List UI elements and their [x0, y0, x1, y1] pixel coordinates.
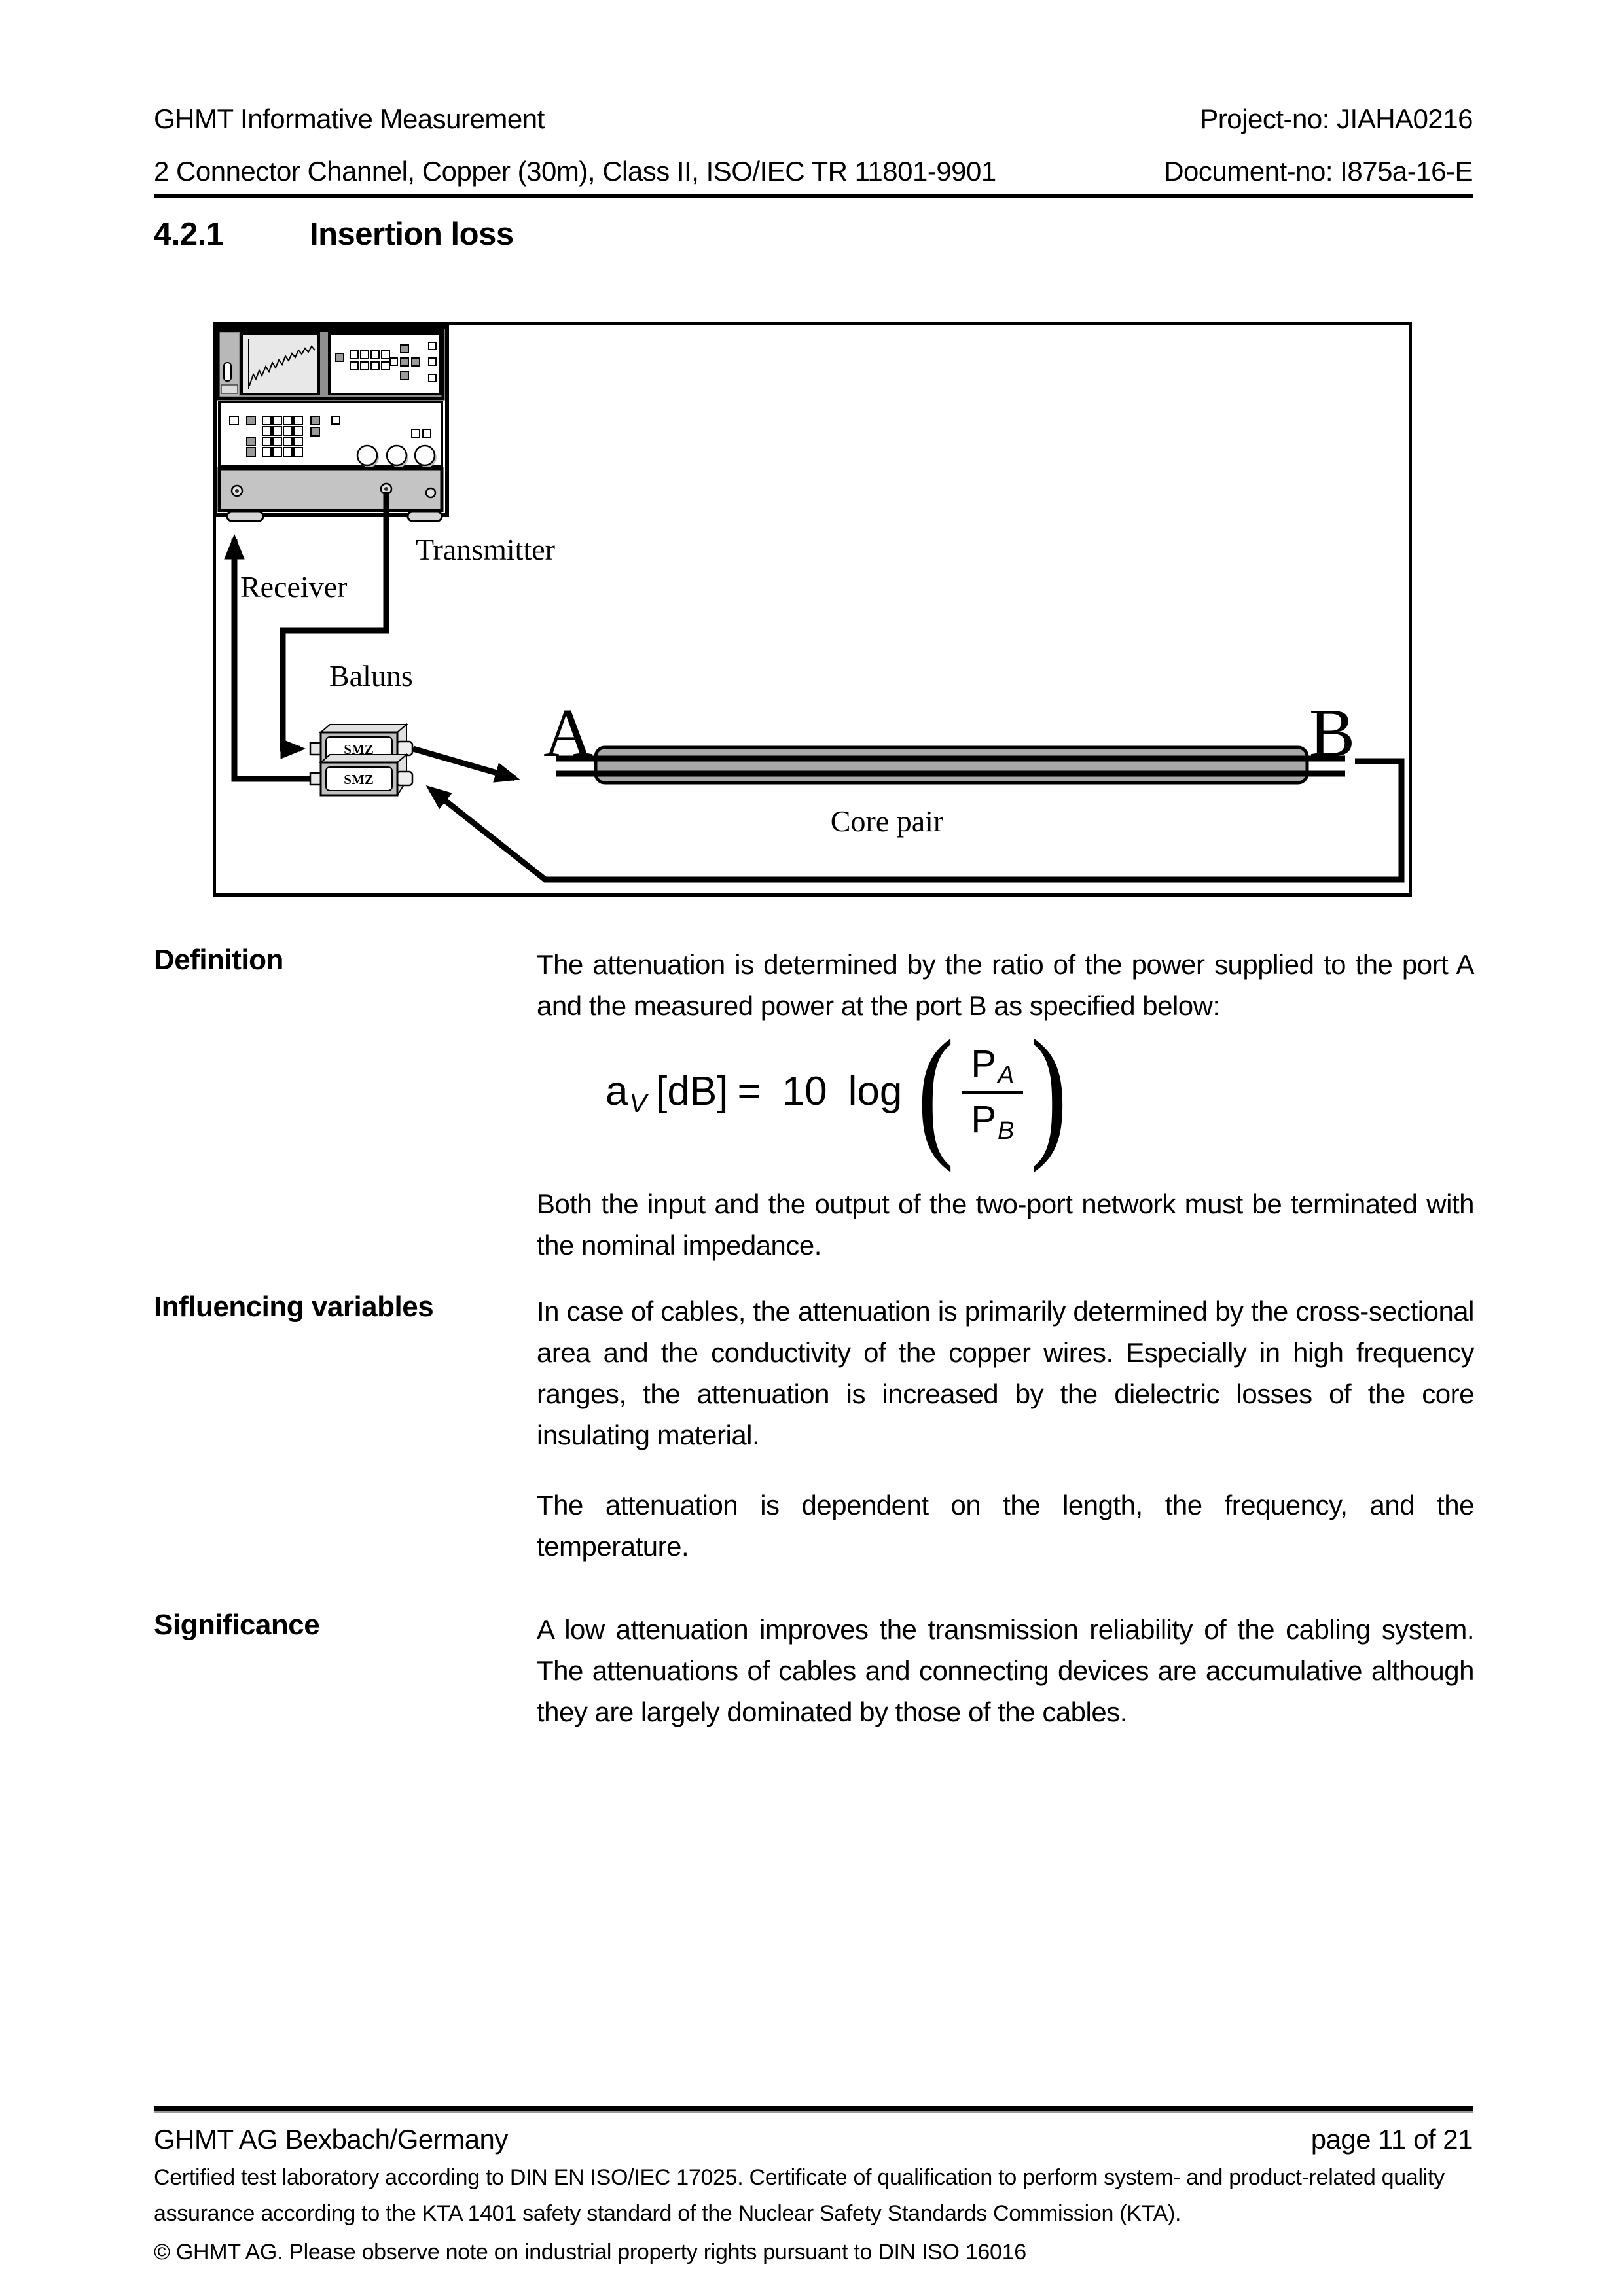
instrument-connector-panel — [219, 469, 442, 511]
influencing-text-2: The attenuation is dependent on the leng… — [537, 1484, 1474, 1567]
footer-page-number: page 11 of 21 — [1311, 2122, 1473, 2157]
influencing-label: Influencing variables — [154, 1291, 433, 1323]
transmitter-label: Transmitter — [416, 533, 555, 566]
footer-company: GHMT AG Bexbach/Germany — [154, 2122, 508, 2157]
footer-rule — [154, 2106, 1473, 2111]
significance-text: A low attenuation improves the transmiss… — [537, 1609, 1474, 1732]
header-rule — [154, 194, 1473, 198]
measurement-setup-diagram: SMZ SMZ Transmitter Receiver Baluns A B … — [213, 322, 1412, 897]
footer-copyright: © GHMT AG. Please observe note on indust… — [154, 2234, 1483, 2270]
core-pair-label: Core pair — [831, 804, 943, 838]
formula-denominator: PB — [962, 1094, 1023, 1143]
definition-text: The attenuation is determined by the rat… — [537, 944, 1474, 1026]
numerator-symbol: P — [971, 1043, 996, 1085]
insertion-loss-formula: aV [dB] = 10 log ( PA PB ) — [605, 1029, 1074, 1154]
instrument-foot-left — [227, 512, 263, 521]
header-row-2: 2 Connector Channel, Copper (30m), Class… — [154, 154, 1473, 188]
section-title: Insertion loss — [310, 217, 514, 252]
section-heading: 4.2.1Insertion loss — [154, 216, 514, 253]
significance-label: Significance — [154, 1609, 319, 1641]
formula-paren-close: ) — [1031, 1029, 1068, 1154]
definition-note: Both the input and the output of the two… — [537, 1183, 1474, 1266]
balun-bottom: SMZ — [310, 755, 412, 795]
influencing-text-1: In case of cables, the attenuation is pr… — [537, 1291, 1474, 1456]
balun-bottom-label: SMZ — [344, 772, 374, 787]
document-page: { "header": { "left_line1": "GHMT Inform… — [0, 0, 1624, 2296]
formula-unit: [dB] — [656, 1068, 728, 1115]
formula-coefficient: 10 — [782, 1068, 827, 1115]
section-number: 4.2.1 — [154, 216, 310, 253]
instrument-display — [242, 334, 319, 394]
network-analyzer — [215, 327, 447, 521]
formula-symbol-subscript: V — [629, 1089, 647, 1118]
header-subtitle: 2 Connector Channel, Copper (30m), Class… — [154, 154, 996, 188]
formula-fraction: PA PB — [962, 1041, 1023, 1143]
instrument-keypad-main — [219, 402, 442, 467]
header-document-no: Document-no: I875a-16-E — [1164, 154, 1473, 188]
denominator-symbol: P — [971, 1098, 996, 1141]
header-project-no: Project-no: JIAHA0216 — [1200, 102, 1473, 136]
formula-symbol: a — [605, 1069, 628, 1114]
receiver-label: Receiver — [240, 570, 347, 603]
baluns-label: Baluns — [329, 659, 413, 692]
cable-sheath — [596, 747, 1307, 783]
formula-log: log — [848, 1068, 903, 1115]
definition-label: Definition — [154, 944, 283, 977]
header-row-1: GHMT Informative Measurement Project-no:… — [154, 102, 1473, 136]
formula-paren-open: ( — [918, 1029, 954, 1154]
denominator-subscript: B — [998, 1117, 1014, 1145]
footer-row: GHMT AG Bexbach/Germany page 11 of 21 — [154, 2122, 1473, 2157]
port-a-label: A — [543, 694, 593, 771]
instrument-keypad-top — [329, 334, 441, 394]
formula-lhs: aV — [605, 1068, 647, 1115]
footer-certification-text: Certified test laboratory according to D… — [154, 2160, 1483, 2232]
port-b-label: B — [1309, 694, 1355, 771]
numerator-subscript: A — [998, 1062, 1014, 1089]
instrument-foot-right — [408, 512, 442, 521]
header-title: GHMT Informative Measurement — [154, 102, 545, 136]
formula-numerator: PA — [962, 1041, 1023, 1094]
formula-equals: = — [737, 1068, 761, 1115]
